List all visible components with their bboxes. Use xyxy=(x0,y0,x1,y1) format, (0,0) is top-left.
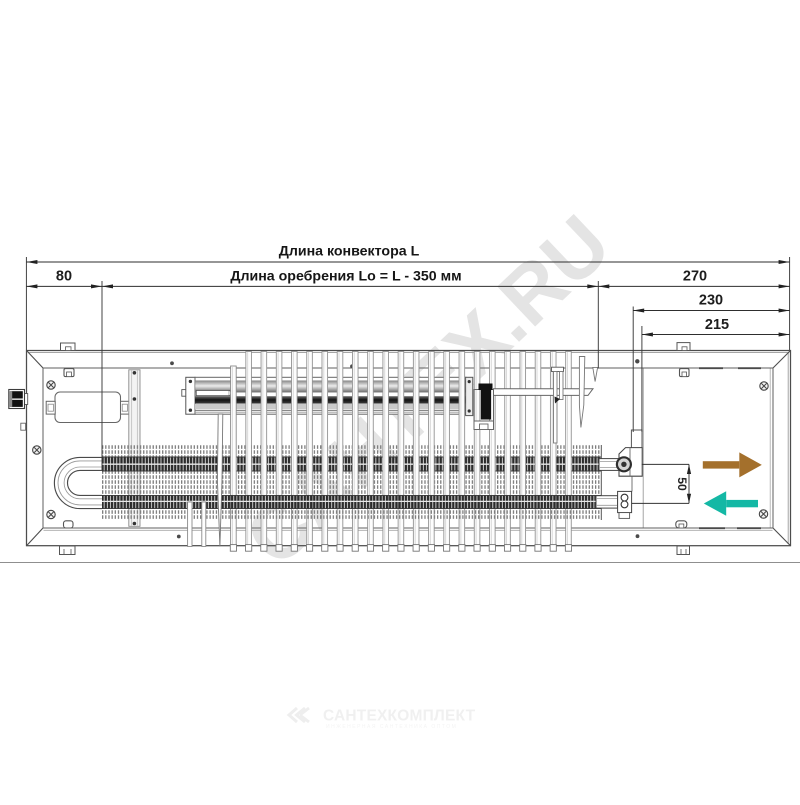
svg-text:ИНЖЕНЕРНАЯ САНТЕХНИКА ОПТОМ: ИНЖЕНЕРНАЯ САНТЕХНИКА ОПТОМ xyxy=(326,724,457,730)
svg-text:215: 215 xyxy=(705,317,729,333)
svg-text:230: 230 xyxy=(699,293,723,309)
svg-text:50: 50 xyxy=(675,477,689,491)
svg-text:Длина оребрения Lo = L - 350 м: Длина оребрения Lo = L - 350 мм xyxy=(230,269,461,285)
svg-text:270: 270 xyxy=(683,269,707,285)
svg-text:80: 80 xyxy=(56,269,72,285)
svg-text:САНТЕХКОМПЛЕКТ: САНТЕХКОМПЛЕКТ xyxy=(323,708,476,725)
svg-text:Длина конвектора L: Длина конвектора L xyxy=(279,244,420,260)
